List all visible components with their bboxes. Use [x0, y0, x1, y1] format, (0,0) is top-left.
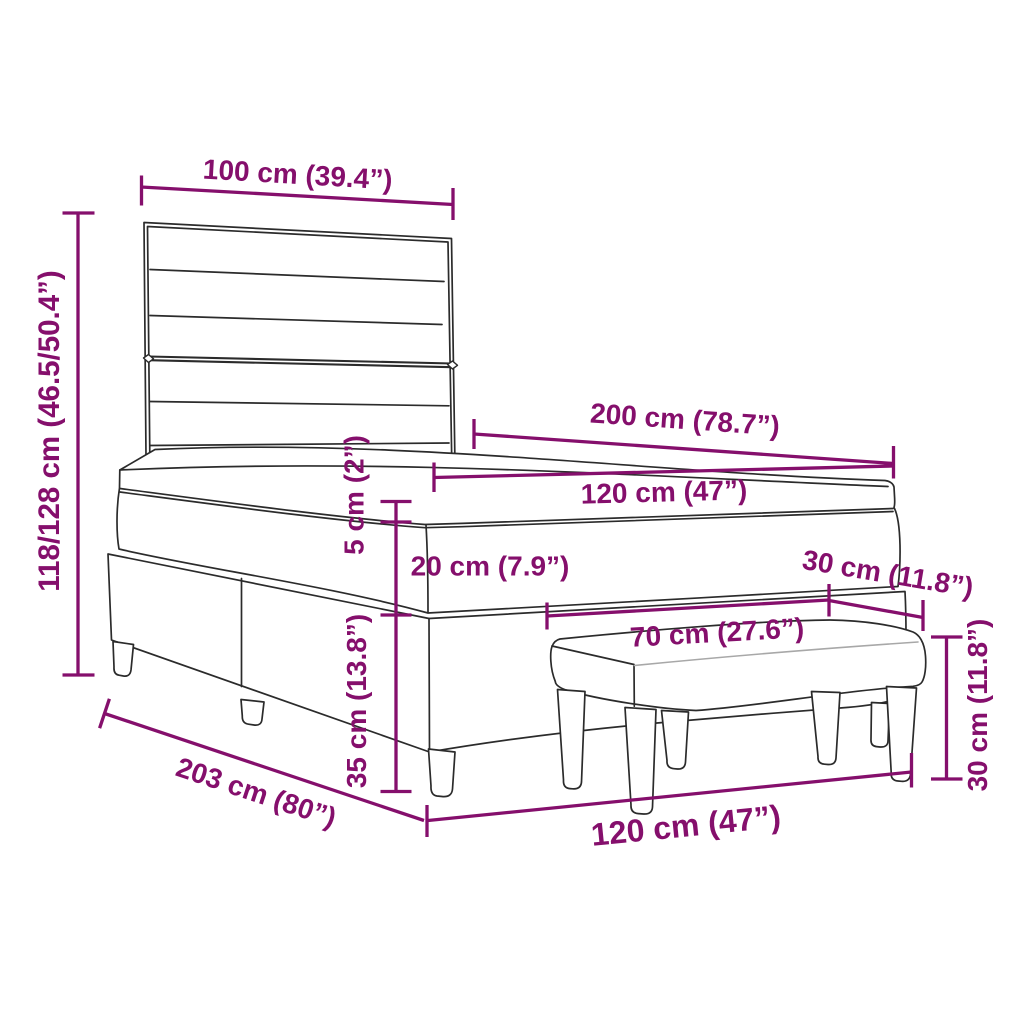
svg-text:118/128 cm (46.5/50.4”): 118/128 cm (46.5/50.4”): [33, 270, 66, 591]
svg-text:30 cm (11.8”): 30 cm (11.8”): [962, 619, 993, 792]
svg-text:20 cm (7.9”): 20 cm (7.9”): [411, 551, 570, 582]
svg-text:35 cm (13.8”): 35 cm (13.8”): [341, 614, 372, 788]
svg-text:120 cm (47”): 120 cm (47”): [580, 474, 747, 509]
svg-text:5 cm (2”): 5 cm (2”): [339, 435, 370, 555]
